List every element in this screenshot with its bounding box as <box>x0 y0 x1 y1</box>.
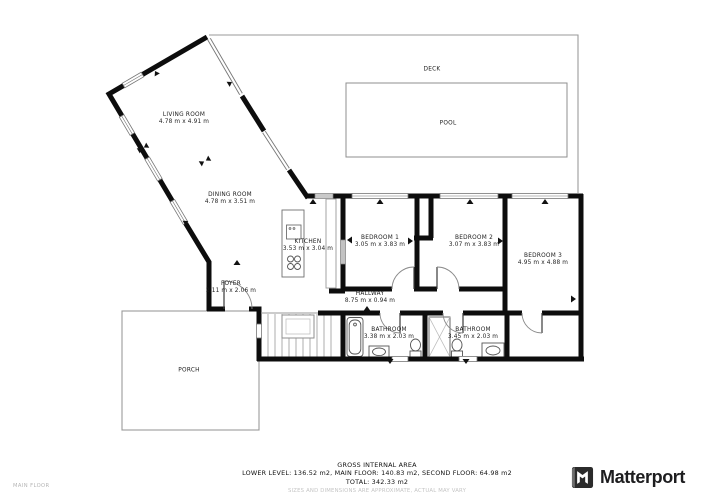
floor-plan-page: LIVING ROOM 4.78 m x 4.91 m DINING ROOM … <box>0 0 707 500</box>
pool-outline <box>346 83 567 157</box>
toilet-icon <box>410 339 421 358</box>
staircase <box>261 313 341 359</box>
toilet-icon <box>452 339 463 358</box>
sliding-door <box>315 193 333 198</box>
shower-icon <box>429 317 450 357</box>
bathtub-icon <box>347 318 363 357</box>
floor-label: MAIN FLOOR <box>13 483 50 489</box>
kitchen-counter <box>326 199 336 288</box>
sink-icon <box>369 346 389 358</box>
pocket-door <box>340 240 345 264</box>
kitchen-island <box>282 210 304 277</box>
matterport-wordmark: Matterport <box>600 467 685 488</box>
floor-plan-drawing <box>0 0 707 500</box>
kitchen-sink-icon <box>287 225 302 239</box>
sink-icon <box>482 343 504 358</box>
matterport-logo: Matterport <box>571 466 685 489</box>
porch-outline <box>122 311 259 430</box>
matterport-icon <box>571 466 594 489</box>
